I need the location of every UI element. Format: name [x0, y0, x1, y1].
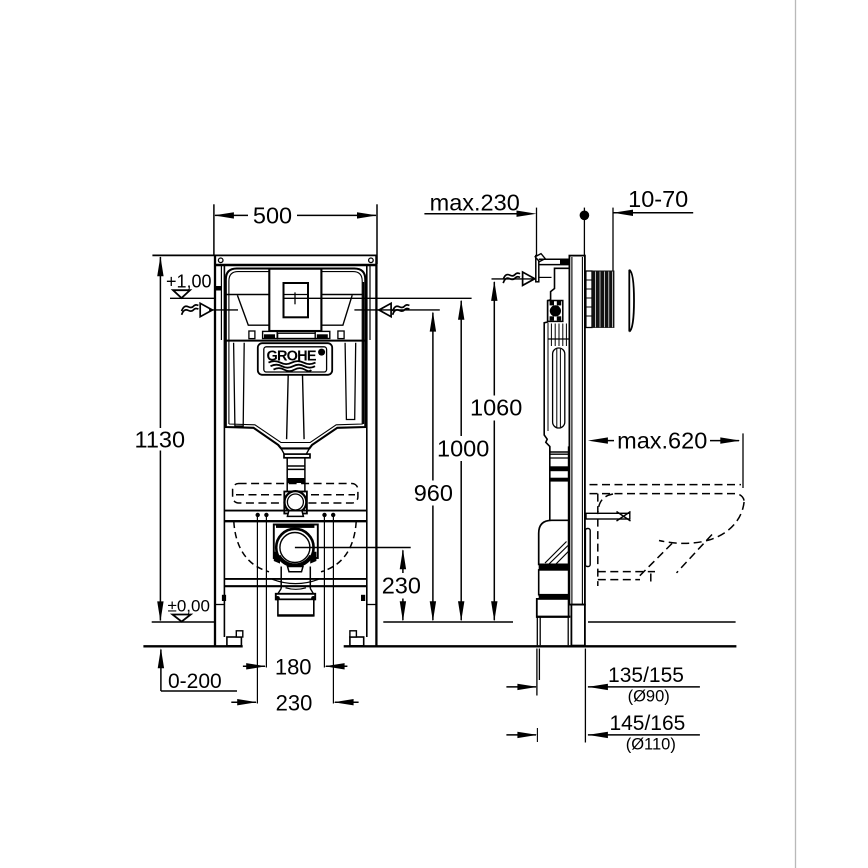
- svg-text:500: 500: [253, 203, 292, 229]
- svg-text:max.230: max.230: [430, 189, 520, 215]
- svg-text:145/165: 145/165: [609, 712, 685, 735]
- svg-text:135/155: 135/155: [608, 664, 684, 687]
- svg-text:+1,00: +1,00: [166, 272, 212, 292]
- svg-text:180: 180: [275, 655, 312, 680]
- svg-text:1060: 1060: [470, 395, 522, 421]
- svg-text:960: 960: [414, 480, 453, 506]
- svg-text:max.620: max.620: [617, 428, 707, 454]
- svg-text:1130: 1130: [135, 427, 186, 453]
- svg-text:±0,00: ±0,00: [168, 596, 210, 615]
- svg-text:230: 230: [276, 691, 313, 716]
- svg-text:10-70: 10-70: [628, 186, 688, 212]
- svg-text:(Ø90): (Ø90): [628, 688, 670, 706]
- svg-text:1000: 1000: [437, 436, 489, 462]
- svg-text:0-200: 0-200: [168, 670, 222, 693]
- svg-text:230: 230: [382, 573, 421, 599]
- svg-text:(Ø110): (Ø110): [626, 736, 676, 754]
